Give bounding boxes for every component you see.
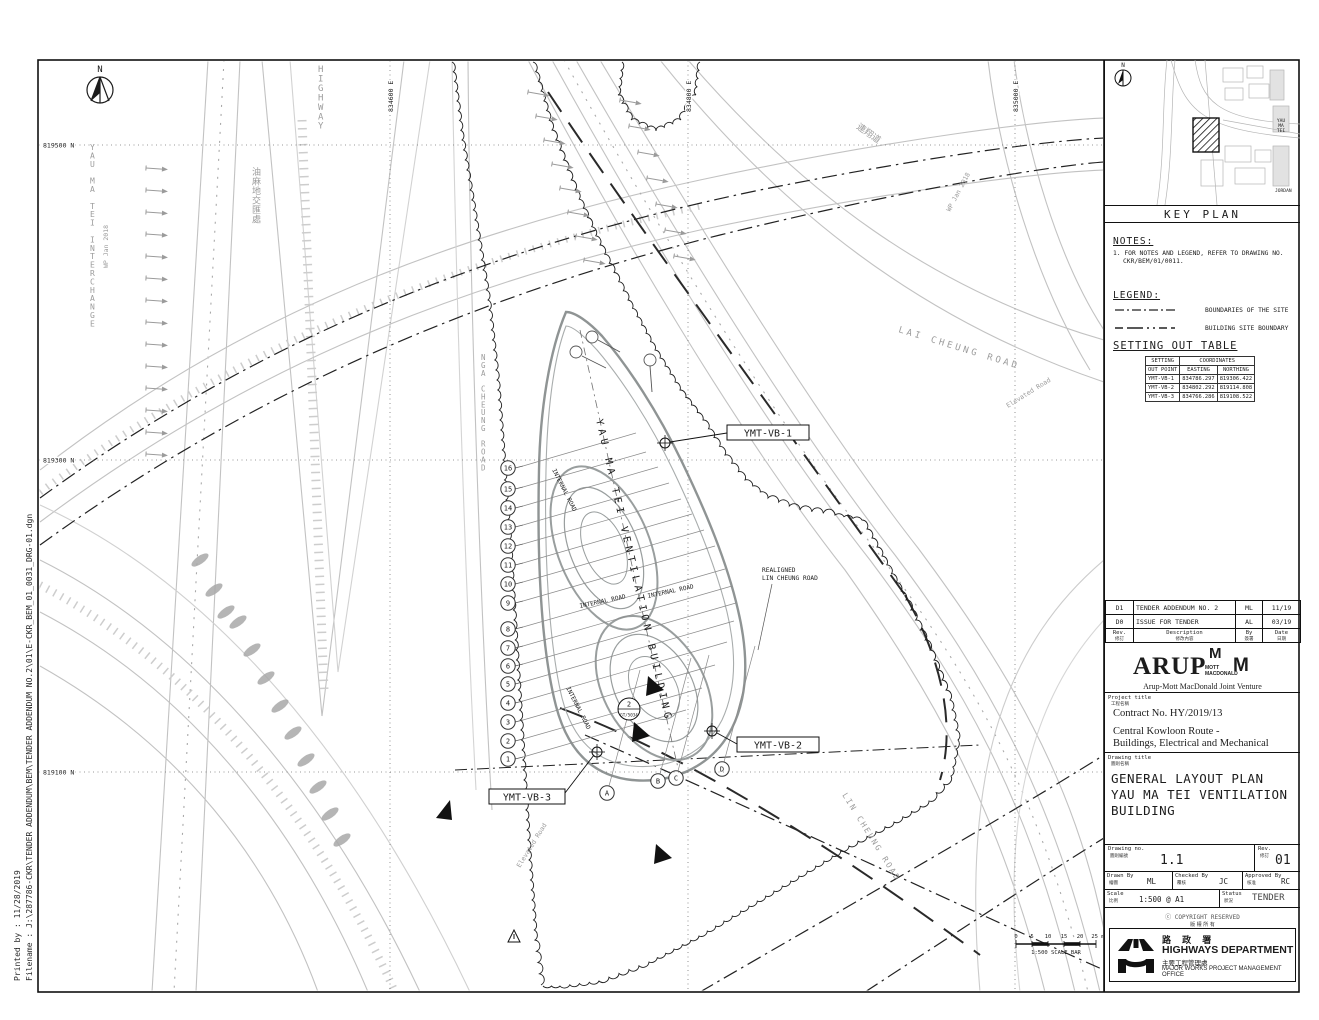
scalebar-tick: 0	[1014, 934, 1017, 940]
project-title-label-zh: 工程名稱	[1111, 701, 1129, 707]
notes-heading: NOTES:	[1113, 236, 1153, 247]
grid-label-northing: 819300 N	[43, 457, 74, 465]
drawing-title-line: GENERAL LAYOUT PLAN	[1111, 771, 1288, 787]
drawn-by-label: Drawn By	[1107, 873, 1134, 879]
drawing-number-row: Drawing no. 圖則編號 1.1 Rev. 修訂 01	[1105, 845, 1300, 872]
svg-text:8: 8	[506, 626, 510, 634]
copyright-text: COPYRIGHT RESERVED	[1175, 914, 1240, 921]
scale-value: 1:500 @ A1	[1139, 895, 1184, 904]
contract-no: Contract No. HY/2019/13	[1113, 708, 1222, 719]
scalebar-tick: 20	[1077, 934, 1084, 940]
label-interchange-zh: 油麻地交匯處	[252, 166, 261, 225]
jv-caption: Arup-Mott MacDonald Joint Venture	[1105, 682, 1300, 691]
setting-out-heading: SETTING OUT TABLE	[1113, 340, 1237, 352]
svg-text:5: 5	[506, 681, 510, 689]
drawing-title-line: YAU MA TEI VENTILATION	[1111, 787, 1288, 803]
sot-col-easting: EASTING	[1180, 366, 1217, 375]
project-name-1: Central Kowloon Route -	[1113, 726, 1219, 737]
project-title-block: Project title 工程名稱 Contract No. HY/2019/…	[1105, 693, 1300, 753]
svg-text:12: 12	[504, 543, 512, 551]
grid-label-easting: 834800 E	[685, 81, 693, 112]
rev-label: Rev.	[1258, 846, 1271, 852]
scale-label-zh: 比例	[1109, 898, 1118, 904]
drawing-title-text: GENERAL LAYOUT PLAN YAU MA TEI VENTILATI…	[1111, 771, 1288, 819]
sot-col-point2: OUT POINT	[1146, 366, 1180, 375]
label-nga-cheung-road: NGA CHEUNG ROAD	[481, 353, 486, 472]
vb1-label: YMT-VB-1	[744, 429, 792, 440]
label-highway: HIGHWAY	[318, 65, 324, 132]
svg-text:1: 1	[506, 756, 510, 764]
svg-text:4: 4	[506, 700, 510, 708]
grid-label-easting: 835000 E	[1012, 81, 1020, 112]
svg-text:B: B	[656, 778, 660, 786]
legend-item-building-site: BUILDING SITE BOUNDARY	[1113, 324, 1293, 334]
vb2-label: YMT-VB-2	[754, 741, 802, 752]
sot-col-coordinates: COORDINATES	[1180, 357, 1255, 366]
copyright-note: ⓒ COPYRIGHT RESERVED 版 權 所 有	[1105, 912, 1300, 928]
revision-row: D0 ISSUE FOR TENDER AL 03/19	[1106, 615, 1301, 629]
sot-col-northing: NORTHING	[1217, 366, 1254, 375]
legend-label: BOUNDARIES OF THE SITE	[1205, 307, 1288, 314]
mott-text-2: MACDONALD	[1205, 671, 1238, 677]
key-plan-caption: KEY PLAN	[1105, 205, 1300, 223]
consultant-block: ARUP M M MOTT MACDONALD Arup-Mott MacDon…	[1105, 645, 1300, 693]
drawn-by-value: ML	[1147, 877, 1156, 886]
copyright-icon: ⓒ	[1165, 914, 1171, 921]
revision-header-row: Rev.修訂 Description修改內容 By簽署 Date日期	[1106, 629, 1301, 643]
svg-text:13: 13	[504, 524, 512, 532]
scalebar-caption: 1:500 SCALE BAR	[1031, 950, 1081, 956]
scale-status-row: Scale 比例 1:500 @ A1 Status 狀況 TENDER	[1105, 890, 1300, 908]
label-wp-left: WP Jan 2018	[102, 225, 110, 268]
legend-line-dashdot	[1113, 306, 1177, 314]
key-plan-north-letter: N	[1121, 62, 1125, 69]
note-line: 1. FOR NOTES AND LEGEND, REFER TO DRAWIN…	[1113, 250, 1293, 258]
svg-text:C: C	[674, 775, 678, 783]
signoff-row: Drawn By 繪圖 ML Checked By 覆核 JC Approved…	[1105, 872, 1300, 890]
revision-table: D1 TENDER ADDENDUM NO. 2 ML 11/19 D0 ISS…	[1105, 600, 1301, 643]
approved-by-value: RC	[1281, 877, 1290, 886]
status-label-zh: 狀況	[1224, 898, 1233, 904]
setting-out-table: SETTING COORDINATES OUT POINT EASTING NO…	[1145, 356, 1255, 402]
legend-label: BUILDING SITE BOUNDARY	[1205, 325, 1288, 332]
svg-text:2: 2	[506, 738, 510, 746]
svg-text:6: 6	[506, 663, 510, 671]
highways-department-logo	[1116, 937, 1156, 975]
label-realigned-2: LIN CHEUNG ROAD	[762, 575, 818, 582]
scalebar-tick: 15	[1061, 934, 1068, 940]
key-plan-north-arrow: N	[1115, 62, 1131, 86]
revision-row: D1 TENDER ADDENDUM NO. 2 ML 11/19	[1106, 601, 1301, 615]
approved-by-label-zh: 核准	[1247, 880, 1256, 886]
drawing-title-label-zh: 圖則名稱	[1111, 761, 1129, 767]
approved-by-label: Approved By	[1245, 873, 1281, 879]
drawing-no-label-zh: 圖則編號	[1110, 853, 1128, 859]
notes-text: 1. FOR NOTES AND LEGEND, REFER TO DRAWIN…	[1113, 250, 1293, 266]
vb3-label: YMT-VB-3	[503, 793, 551, 804]
title-block: N YAUMATEI JORDAN KEY PLAN NOTES: 1. FOR…	[1104, 60, 1299, 992]
svg-text:9: 9	[506, 600, 510, 608]
sot-row: YMT-VB-3834766.286819108.522	[1146, 393, 1255, 402]
drawing-no-label: Drawing no.	[1108, 846, 1144, 852]
drawing-no-value: 1.1	[1160, 853, 1183, 868]
note-line: CKR/BEM/01/0011.	[1113, 258, 1293, 266]
section-number: 2	[627, 701, 631, 709]
copyright-text-zh: 版 權 所 有	[1105, 921, 1300, 928]
status-value: TENDER	[1252, 893, 1285, 903]
mott-macdonald-logo-m1: M	[1209, 645, 1222, 662]
legend-item-boundaries: BOUNDARIES OF THE SITE	[1113, 306, 1293, 316]
legend-line-longdash	[1113, 324, 1177, 332]
sot-row: YMT-VB-1834786.297819306.422	[1146, 375, 1255, 384]
svg-text:14: 14	[504, 505, 512, 513]
grid-label-easting: 834600 E	[387, 81, 395, 112]
key-plan: N YAUMATEI JORDAN	[1105, 60, 1300, 205]
sot-col-point: SETTING	[1146, 357, 1180, 366]
drawing-title-line: BUILDING	[1111, 803, 1288, 819]
svg-text:11: 11	[504, 562, 512, 570]
drawing-title-block: Drawing title 圖則名稱 GENERAL LAYOUT PLAN Y…	[1105, 753, 1300, 845]
label-interchange: YAU MA TEI INTERCHANGE	[90, 143, 95, 328]
svg-text:7: 7	[506, 645, 510, 653]
legend-heading: LEGEND:	[1113, 290, 1160, 301]
department-block: 路 政 署 HIGHWAYS DEPARTMENT 主要工程管理處 MAJOR …	[1109, 928, 1296, 982]
checked-by-label: Checked By	[1175, 873, 1208, 879]
checked-by-label-zh: 覆核	[1177, 880, 1186, 886]
key-plan-site-marker	[1193, 118, 1219, 152]
grid-label-northing: 819100 N	[43, 769, 74, 777]
status-label: Status	[1222, 891, 1242, 897]
rev-label-zh: 修訂	[1260, 853, 1269, 859]
key-plan-label-jordan: JORDAN	[1275, 188, 1292, 194]
svg-text:10: 10	[504, 581, 512, 589]
scale-label: Scale	[1107, 891, 1124, 897]
drawing-sheet: Printed by : 11/28/2019 Filename : J:\28…	[0, 0, 1319, 1020]
svg-text:15: 15	[504, 486, 512, 494]
scalebar-tick: 5	[1030, 934, 1033, 940]
grid-label-northing: 819500 N	[43, 142, 74, 150]
label-realigned-1: REALIGNED	[762, 567, 796, 574]
svg-text:16: 16	[504, 465, 512, 473]
office-name-en: MAJOR WORKS PROJECT MANAGEMENT OFFICE	[1162, 966, 1295, 978]
department-name-en: HIGHWAYS DEPARTMENT	[1162, 944, 1293, 956]
north-letter: N	[97, 65, 102, 75]
project-name-2: Buildings, Electrical and Mechanical	[1113, 738, 1269, 749]
rev-value: 01	[1275, 853, 1291, 868]
drawn-by-label-zh: 繪圖	[1109, 880, 1118, 886]
svg-text:3: 3	[506, 719, 510, 727]
checked-by-value: JC	[1219, 877, 1228, 886]
sot-row: YMT-VB-2834802.292819114.808	[1146, 384, 1255, 393]
arup-logo: ARUP	[1133, 653, 1206, 681]
scalebar-tick: 10	[1045, 934, 1052, 940]
section-sheet-ref: GT/5034	[620, 713, 638, 718]
